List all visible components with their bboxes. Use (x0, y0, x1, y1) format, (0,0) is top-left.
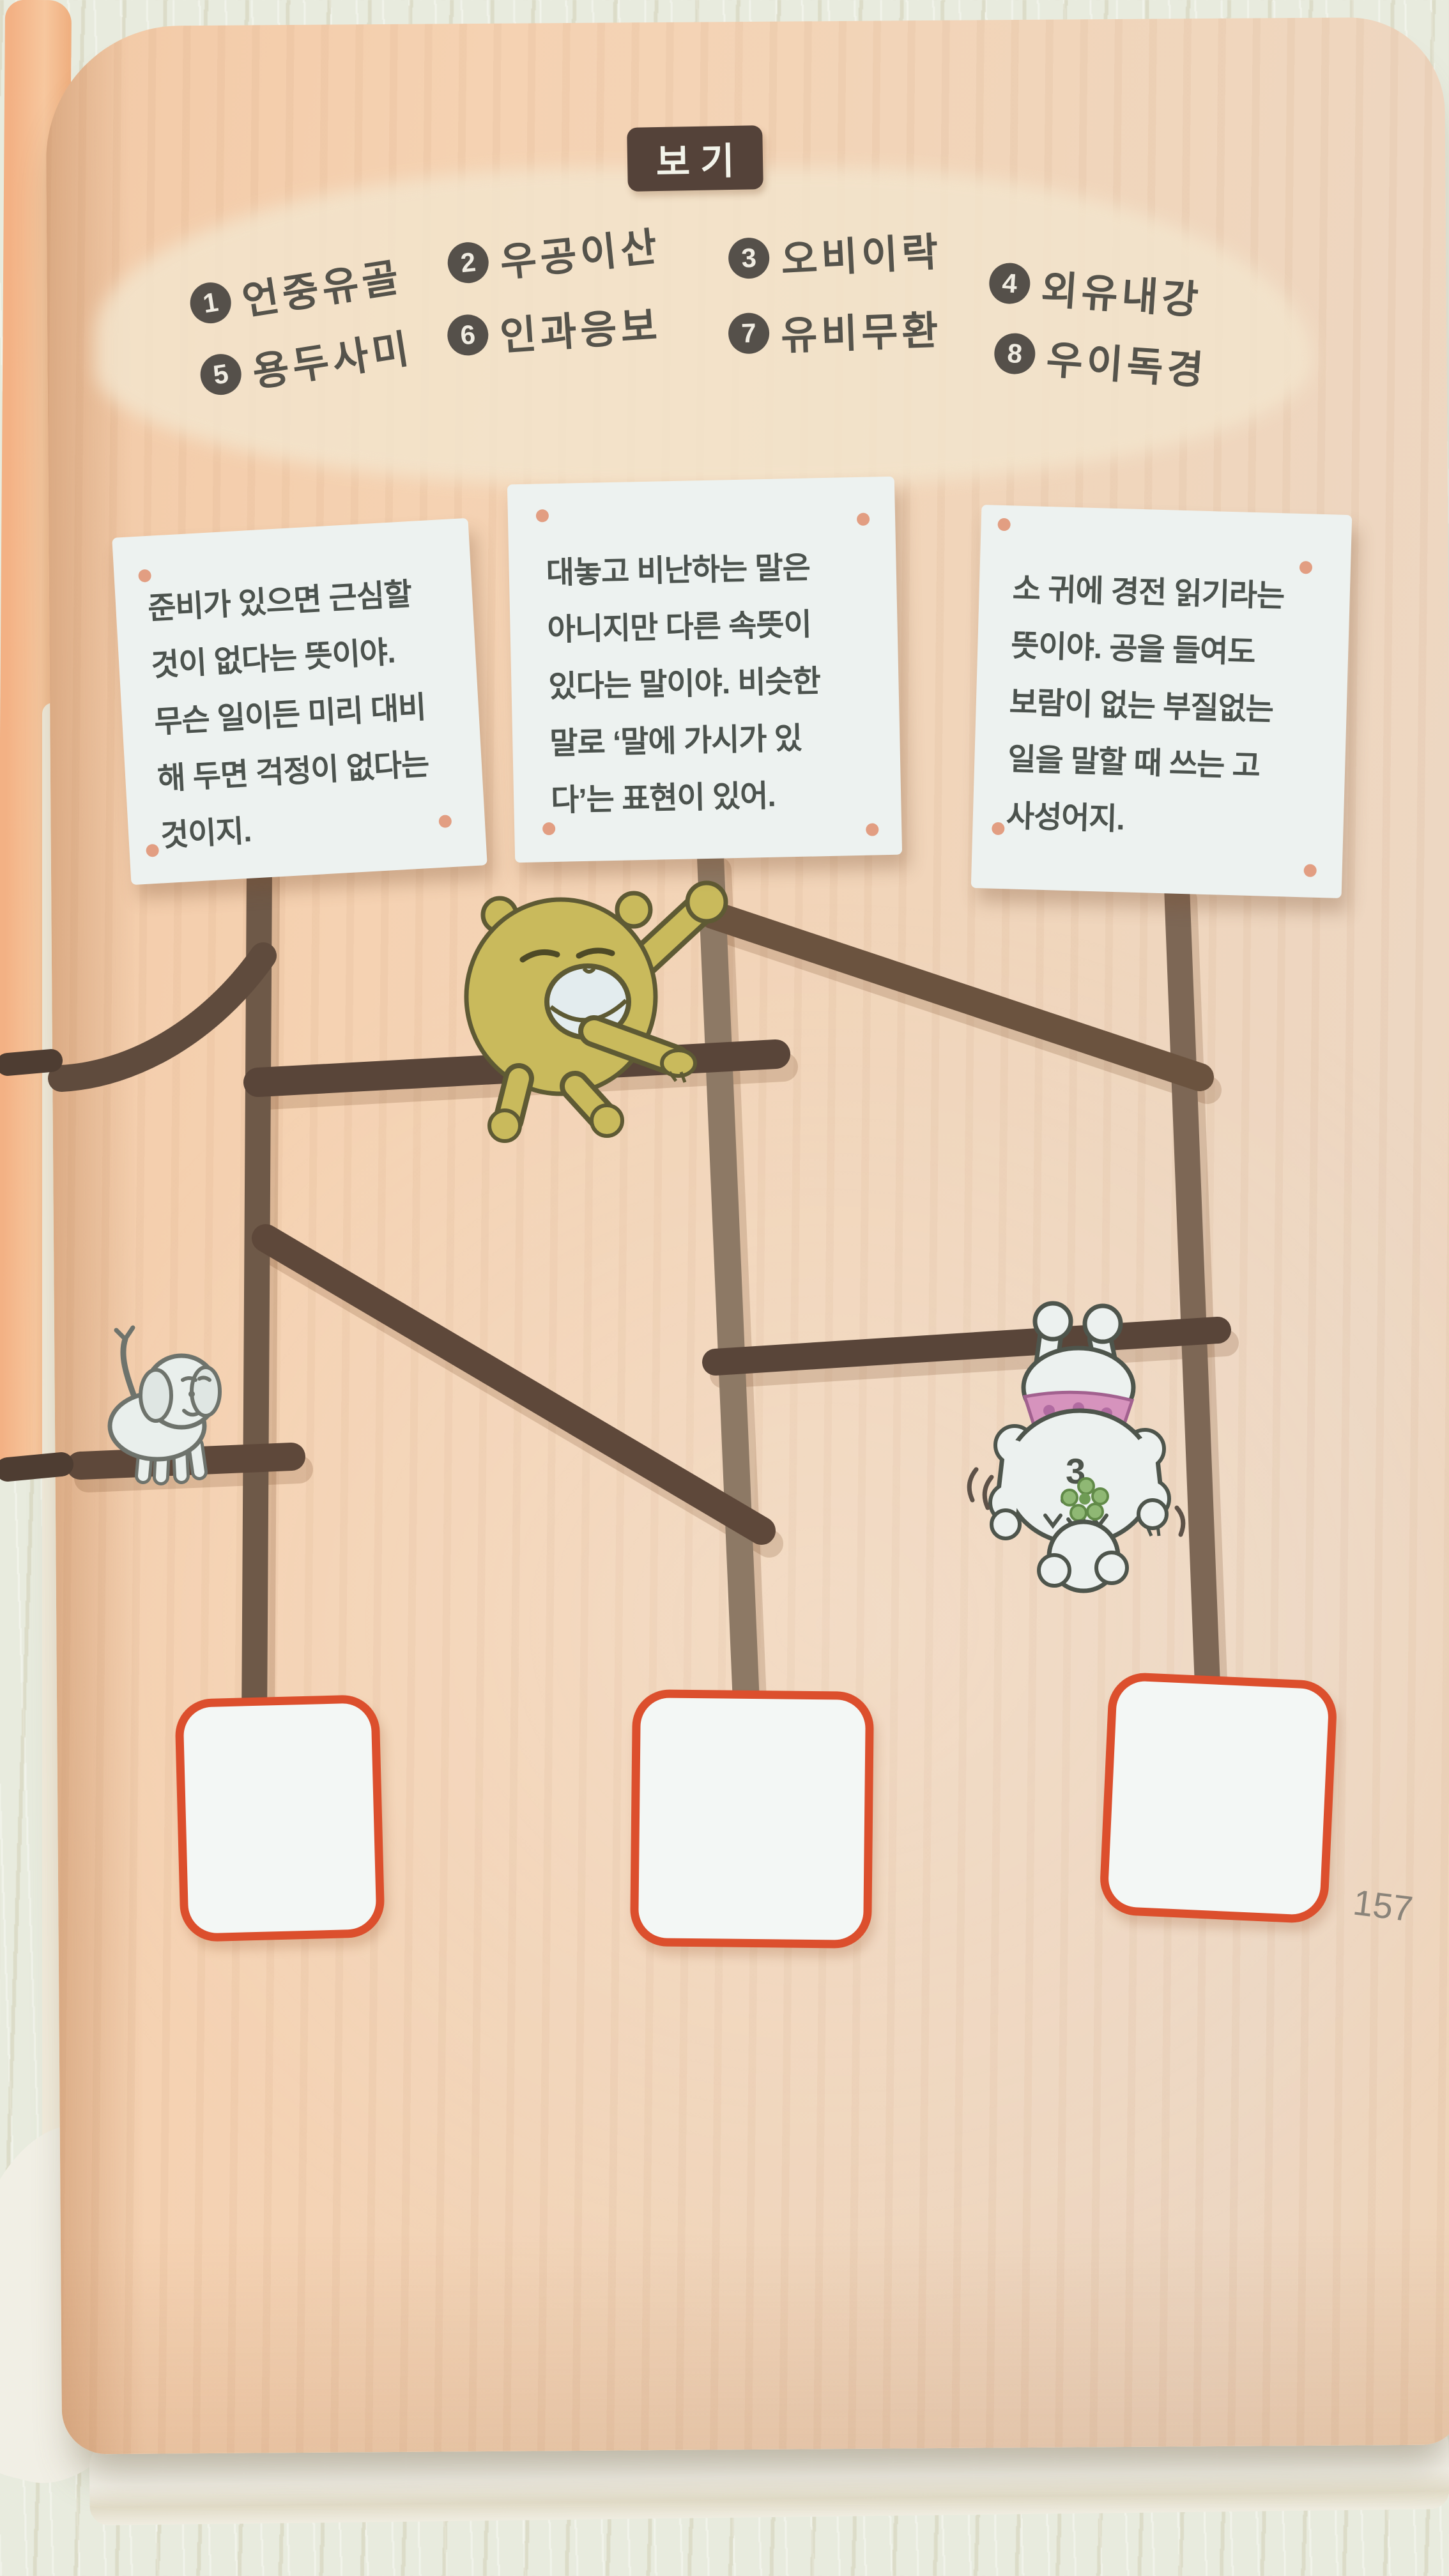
option-label: 인과응보 (498, 293, 663, 361)
option-number-badge: 5 (197, 351, 244, 398)
pin-dot (857, 513, 870, 526)
photo-of-workbook-page: { "page_number": "157", "header": { "bad… (0, 0, 1449, 2576)
option-number-badge: 6 (446, 313, 489, 356)
pin-dot (438, 815, 452, 828)
rung-spine-stub-top (8, 1061, 51, 1064)
option-number-badge: 4 (988, 261, 1031, 305)
bogi-example-badge: 보기 (627, 125, 763, 192)
option-label: 외유내강 (1039, 257, 1204, 325)
ladder-right-rail (1177, 887, 1209, 1719)
ladder-left-rail (254, 866, 259, 1725)
page-number: 157 (1351, 1882, 1415, 1930)
option-number-badge: 2 (446, 240, 491, 285)
bear-character (466, 883, 726, 1141)
pin-dot (866, 823, 878, 836)
rung-spine-stub-bottom (8, 1464, 61, 1469)
rung-curved-top-left (61, 956, 263, 1078)
option-number-badge: 3 (728, 236, 770, 279)
option-item-3: 3 오비이락 (727, 219, 943, 287)
meaning-card-1-text: 준비가 있으면 근심할 것이 없다는 뜻이야. 무슨 일이든 미리 대비 해 두… (146, 565, 434, 864)
option-number-badge: 7 (728, 312, 770, 355)
option-number-badge: 8 (993, 332, 1036, 375)
pin-dot (997, 518, 1011, 532)
pin-dot (1303, 864, 1317, 877)
answer-box-1[interactable] (174, 1694, 385, 1942)
rung-diagonal-middle (266, 1238, 762, 1531)
meaning-card-2-text: 대놓고 비난하는 말은 아니지만 다른 속뜻이 있다는 말이야. 비슷한 말로 … (546, 539, 824, 829)
ladder-middle-rail (710, 857, 747, 1733)
option-label: 오비이락 (779, 219, 944, 285)
answer-box-2[interactable] (630, 1689, 874, 1949)
pin-dot (146, 844, 159, 857)
option-label: 유비무환 (779, 298, 942, 361)
option-item-7: 7 유비무환 (728, 298, 943, 363)
meaning-card-3-text: 소 귀에 경전 읽기라는 뜻이야. 공을 들여도 보람이 없는 부질없는 일을 … (1006, 560, 1285, 852)
meaning-card-1: 준비가 있으면 근심할 것이 없다는 뜻이야. 무슨 일이든 미리 대비 해 두… (112, 518, 487, 885)
option-number-badge: 1 (187, 280, 234, 326)
option-label: 우이독경 (1045, 327, 1209, 395)
meaning-card-2: 대놓고 비난하는 말은 아니지만 다른 속뜻이 있다는 말이야. 비슷한 말로 … (507, 477, 902, 863)
pin-dot (1299, 561, 1313, 574)
answer-box-3[interactable] (1099, 1671, 1338, 1924)
meaning-card-3: 소 귀에 경전 읽기라는 뜻이야. 공을 들여도 보람이 없는 부질없는 일을 … (971, 505, 1353, 898)
pin-dot (536, 509, 549, 522)
pin-dot (992, 822, 1005, 836)
